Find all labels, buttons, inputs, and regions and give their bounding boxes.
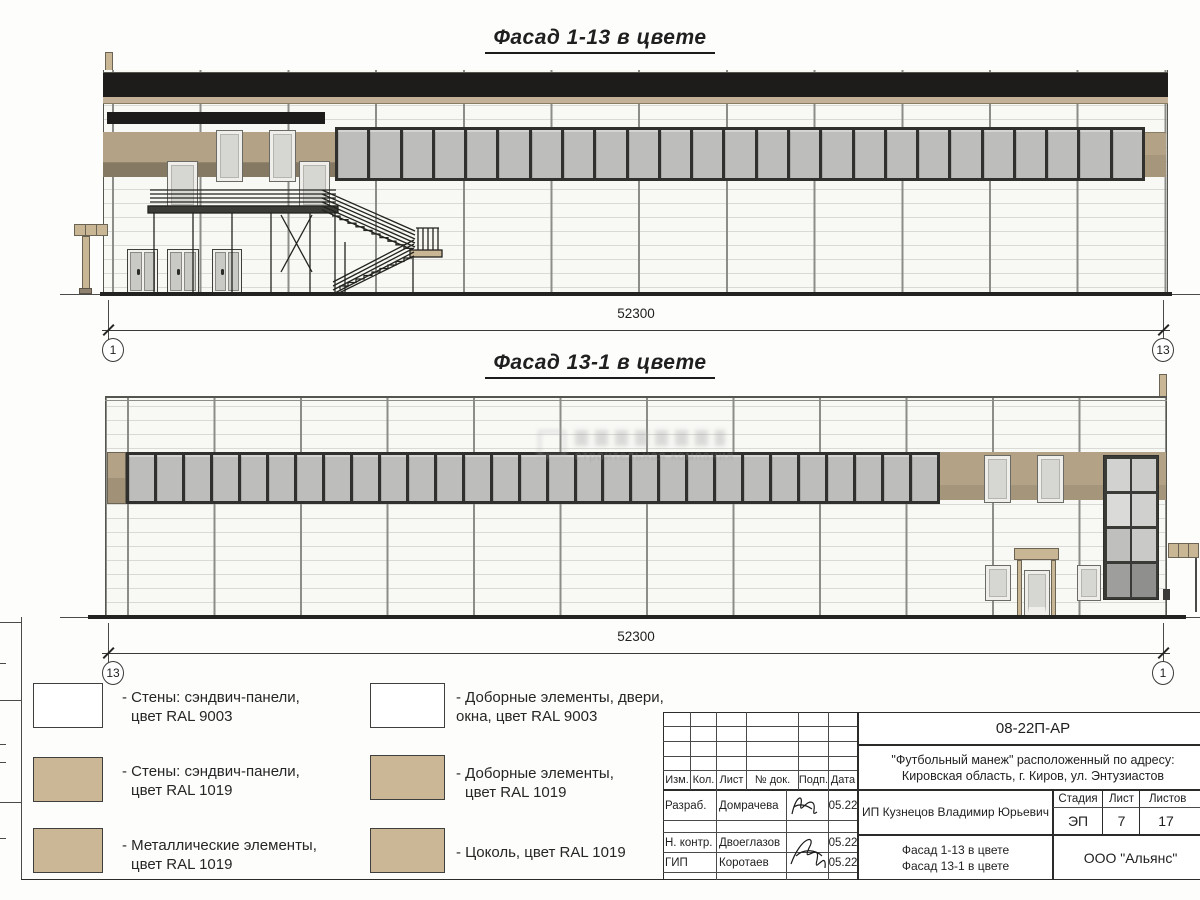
- frame-left-line: [21, 617, 22, 880]
- legend-label: - Стены: сэндвич-панели, цвет RAL 9003: [122, 688, 300, 726]
- legend-label: - Металлические элементы, цвет RAL 1019: [122, 836, 317, 874]
- axis-label: 13: [106, 666, 119, 680]
- facade-1-13-ground-line: [100, 292, 1172, 296]
- facade-13-1-title: Фасад 13-1 в цвете: [0, 351, 1200, 375]
- frame-tick: [0, 700, 21, 701]
- roof-stack-left: [105, 52, 113, 72]
- axis-marker-1: 1: [1152, 661, 1174, 685]
- window-glass: [1081, 569, 1097, 597]
- tb-sheet-title-line1: Фасад 1-13 в цвете: [902, 842, 1009, 858]
- window-pane: [213, 455, 238, 501]
- legend-label-line: цвет RAL 1019: [122, 781, 300, 800]
- signature-scribbles: [786, 790, 830, 880]
- dimension-line: [102, 330, 1170, 331]
- legend-label: - Доборные элементы, цвет RAL 1019: [456, 764, 614, 802]
- legend-label-line: цвет RAL 1019: [456, 783, 614, 802]
- window-pane: [1080, 130, 1109, 178]
- window-pane: [887, 130, 916, 178]
- window-pane: [493, 455, 518, 501]
- tb-role-gip: ГИП: [665, 853, 717, 872]
- axis-label: 1: [1160, 666, 1167, 680]
- facade-13-1-title-text: Фасад 13-1 в цвете: [485, 351, 714, 379]
- curtain-wall-pane: [1132, 564, 1155, 597]
- window-pane: [381, 455, 406, 501]
- tb-col-izm: Изм.: [663, 771, 691, 789]
- window-pane: [465, 455, 490, 501]
- legend-label-line: - Доборные элементы,: [456, 764, 614, 783]
- window-pane: [437, 455, 462, 501]
- legend-label-line: цвет RAL 1019: [122, 855, 317, 874]
- legend-label-line: - Металлические элементы,: [122, 836, 317, 855]
- tb-col-list: Лист: [717, 771, 746, 789]
- window-pane: [856, 455, 881, 501]
- tb-client: ИП Кузнецов Владимир Юрьевич: [858, 790, 1053, 834]
- tb-date-nkontr: 05.22: [829, 833, 857, 852]
- dimension-line: [102, 653, 1170, 654]
- frame-stub: [0, 838, 6, 839]
- facade-13-1-ground-window-2: [1077, 565, 1101, 601]
- door-glass: [1028, 574, 1046, 613]
- facade-13-1-curtain-wall: [1103, 455, 1159, 600]
- frame-stub: [0, 744, 6, 745]
- curtain-wall-pane: [1107, 459, 1130, 492]
- window-pane: [185, 455, 210, 501]
- window-pane: [629, 130, 658, 178]
- window-pane: [984, 130, 1013, 178]
- entry-canopy-post: [1017, 560, 1022, 617]
- tb-doc-number: 08-22П-АР: [858, 712, 1200, 744]
- window-pane: [297, 455, 322, 501]
- canopy-divider: [96, 224, 97, 236]
- window-glass: [988, 459, 1007, 499]
- legend-label-line: окна, цвет RAL 9003: [456, 707, 664, 726]
- wall-block: [1163, 589, 1170, 600]
- right-canopy-support: [1195, 558, 1197, 612]
- legend-label-line: цвет RAL 9003: [122, 707, 300, 726]
- tb-sheet-title-line2: Фасад 13-1 в цвете: [902, 858, 1009, 874]
- facade-1-13-band-window-2: [269, 130, 296, 182]
- facade-13-1-tan-patch-left: [107, 452, 126, 504]
- window-pane: [661, 130, 690, 178]
- window-pane: [532, 130, 561, 178]
- window-pane: [499, 130, 528, 178]
- window-pane: [521, 455, 546, 501]
- left-canopy-post: [82, 236, 90, 293]
- legend-swatch-ral1019-elements: [370, 755, 445, 800]
- tb-col-podp: Подп.: [799, 771, 828, 789]
- legend-label: - Цоколь, цвет RAL 1019: [456, 843, 626, 862]
- tb-sheets-value: 17: [1141, 808, 1191, 834]
- tb-project-line2: Кировская область, г. Киров, ул. Энтузиа…: [902, 768, 1164, 784]
- axis-marker-13: 13: [102, 661, 124, 685]
- facade-13-1-entry-door: [1024, 570, 1050, 617]
- tb-col-doc: № док.: [747, 771, 798, 789]
- window-pane: [596, 130, 625, 178]
- window-pane: [435, 130, 464, 178]
- facade-13-1-band-window-1: [984, 455, 1011, 503]
- facade-1-13-ribbon-window: [335, 127, 1145, 181]
- facade-1-13-tan-patch-right: [1145, 132, 1166, 177]
- watermark-word: [575, 430, 725, 446]
- window-pane: [269, 455, 294, 501]
- tb-project-name: "Футбольный манеж" расположенный по адре…: [858, 748, 1200, 788]
- window-pane: [129, 455, 154, 501]
- curtain-wall-pane: [1107, 529, 1130, 562]
- legend-swatch-ral9003-walls: [33, 683, 103, 728]
- window-pane: [1016, 130, 1045, 178]
- watermark-subtitle: строительная компания: [575, 449, 734, 463]
- tb-name-gip: Коротаев: [719, 853, 785, 872]
- legend-label-line: - Стены: сэндвич-панели,: [122, 688, 300, 707]
- window-pane: [1113, 130, 1142, 178]
- canopy-divider: [1188, 543, 1189, 558]
- window-glass: [273, 134, 292, 178]
- window-pane: [325, 455, 350, 501]
- facade-1-13-parapet-band: [103, 72, 1168, 97]
- frame-tick: [0, 802, 21, 803]
- window-pane: [353, 455, 378, 501]
- tb-line-thin: [663, 756, 857, 757]
- facade-13-1-ground-window-1: [985, 565, 1011, 601]
- window-pane: [884, 455, 909, 501]
- tb-line: [858, 744, 1200, 746]
- curtain-wall-pane: [1132, 459, 1155, 492]
- window-pane: [800, 455, 825, 501]
- facade-13-1-band-window-2: [1037, 455, 1064, 503]
- parapet-edge-line: [105, 400, 1167, 401]
- curtain-wall-pane: [1107, 564, 1130, 597]
- window-pane: [338, 130, 367, 178]
- tb-role-razrab: Разраб.: [665, 793, 715, 819]
- window-pane: [241, 455, 266, 501]
- tb-col-data: Дата: [829, 771, 857, 789]
- window-pane: [157, 455, 182, 501]
- window-pane: [758, 130, 787, 178]
- canopy-divider: [85, 224, 86, 236]
- right-canopy-slab: [1168, 543, 1199, 558]
- window-glass: [1041, 459, 1060, 499]
- frame-stub: [0, 762, 6, 763]
- legend-swatch-ral1019-metal: [33, 828, 103, 873]
- facade-1-13-title: Фасад 1-13 в цвете: [0, 26, 1200, 50]
- left-canopy-slab: [74, 224, 108, 236]
- window-pane: [951, 130, 980, 178]
- watermark-logo: [538, 430, 566, 458]
- extension-line: [1163, 623, 1164, 663]
- window-pane: [744, 455, 769, 501]
- legend-swatch-ral9003-elements: [370, 683, 445, 728]
- dimension-value: 52300: [576, 629, 696, 644]
- legend-label-line: - Доборные элементы, двери,: [456, 688, 664, 707]
- facade-1-13-title-text: Фасад 1-13 в цвете: [485, 26, 714, 54]
- exterior-stair-structure: [140, 182, 470, 300]
- tb-name-razrab: Домрачева: [719, 793, 785, 819]
- legend-swatch-ral1019-walls: [33, 757, 103, 802]
- tb-role-nkontr: Н. контр.: [665, 833, 717, 852]
- legend-label-line: - Цоколь, цвет RAL 1019: [456, 843, 626, 862]
- window-pane: [772, 455, 797, 501]
- drawing-sheet: Фасад 1-13 в цвете: [0, 0, 1200, 900]
- curtain-wall-pane: [1132, 494, 1155, 527]
- curtain-wall-pane: [1107, 494, 1130, 527]
- window-glass: [989, 569, 1007, 597]
- tb-name-nkontr: Двоеглазов: [719, 833, 785, 852]
- roof-stack-right: [1159, 374, 1167, 398]
- tb-sheet-label: Лист: [1103, 790, 1140, 807]
- window-pane: [467, 130, 496, 178]
- curtain-wall-pane: [1132, 529, 1155, 562]
- dimension-value: 52300: [576, 306, 696, 321]
- entry-canopy-slab: [1014, 548, 1059, 560]
- tb-stage-value: ЭП: [1053, 808, 1103, 834]
- tb-company: ООО "Альянс": [1053, 835, 1200, 880]
- window-pane: [790, 130, 819, 178]
- window-pane: [549, 455, 574, 501]
- legend-label-line: - Стены: сэндвич-панели,: [122, 762, 300, 781]
- tb-date-gip: 05.22: [829, 853, 857, 872]
- facade-1-13-black-strip: [107, 112, 325, 124]
- legend-label: - Доборные элементы, двери, окна, цвет R…: [456, 688, 664, 726]
- legend-swatch-ral1019-plinth: [370, 828, 445, 873]
- legend-label: - Стены: сэндвич-панели, цвет RAL 1019: [122, 762, 300, 800]
- window-pane: [693, 130, 722, 178]
- entry-canopy-post: [1051, 560, 1056, 617]
- tb-sheet-value: 7: [1103, 808, 1140, 834]
- tb-date-razrab: 05.22: [829, 793, 857, 819]
- facade-1-13-tan-strip: [103, 97, 1168, 104]
- window-pane: [403, 130, 432, 178]
- window-glass: [220, 134, 239, 178]
- window-pane: [828, 455, 853, 501]
- tb-stage-label: Стадия: [1053, 790, 1103, 807]
- tb-sheets-label: Листов: [1141, 790, 1200, 807]
- tb-line-thin: [663, 741, 857, 742]
- window-pane: [370, 130, 399, 178]
- facade-13-1-ribbon-window: [126, 452, 940, 504]
- tb-col-kol: Кол.: [691, 771, 716, 789]
- frame-stub: [0, 663, 6, 664]
- extension-line: [1163, 300, 1164, 340]
- tb-line-thin: [663, 726, 857, 727]
- window-pane: [912, 455, 937, 501]
- canopy-divider: [1178, 543, 1179, 558]
- window-pane: [725, 130, 754, 178]
- tb-project-line1: "Футбольный манеж" расположенный по адре…: [891, 752, 1174, 768]
- window-pane: [564, 130, 593, 178]
- window-pane: [1048, 130, 1077, 178]
- window-pane: [919, 130, 948, 178]
- window-pane: [855, 130, 884, 178]
- facade-1-13-band-window-1: [216, 130, 243, 182]
- extension-line: [108, 623, 109, 663]
- window-pane: [409, 455, 434, 501]
- tb-sheet-title: Фасад 1-13 в цвете Фасад 13-1 в цвете: [858, 837, 1053, 879]
- facade-13-1-ground-line: [88, 615, 1186, 619]
- frame-tick: [0, 622, 21, 623]
- extension-line: [108, 300, 109, 340]
- window-pane: [822, 130, 851, 178]
